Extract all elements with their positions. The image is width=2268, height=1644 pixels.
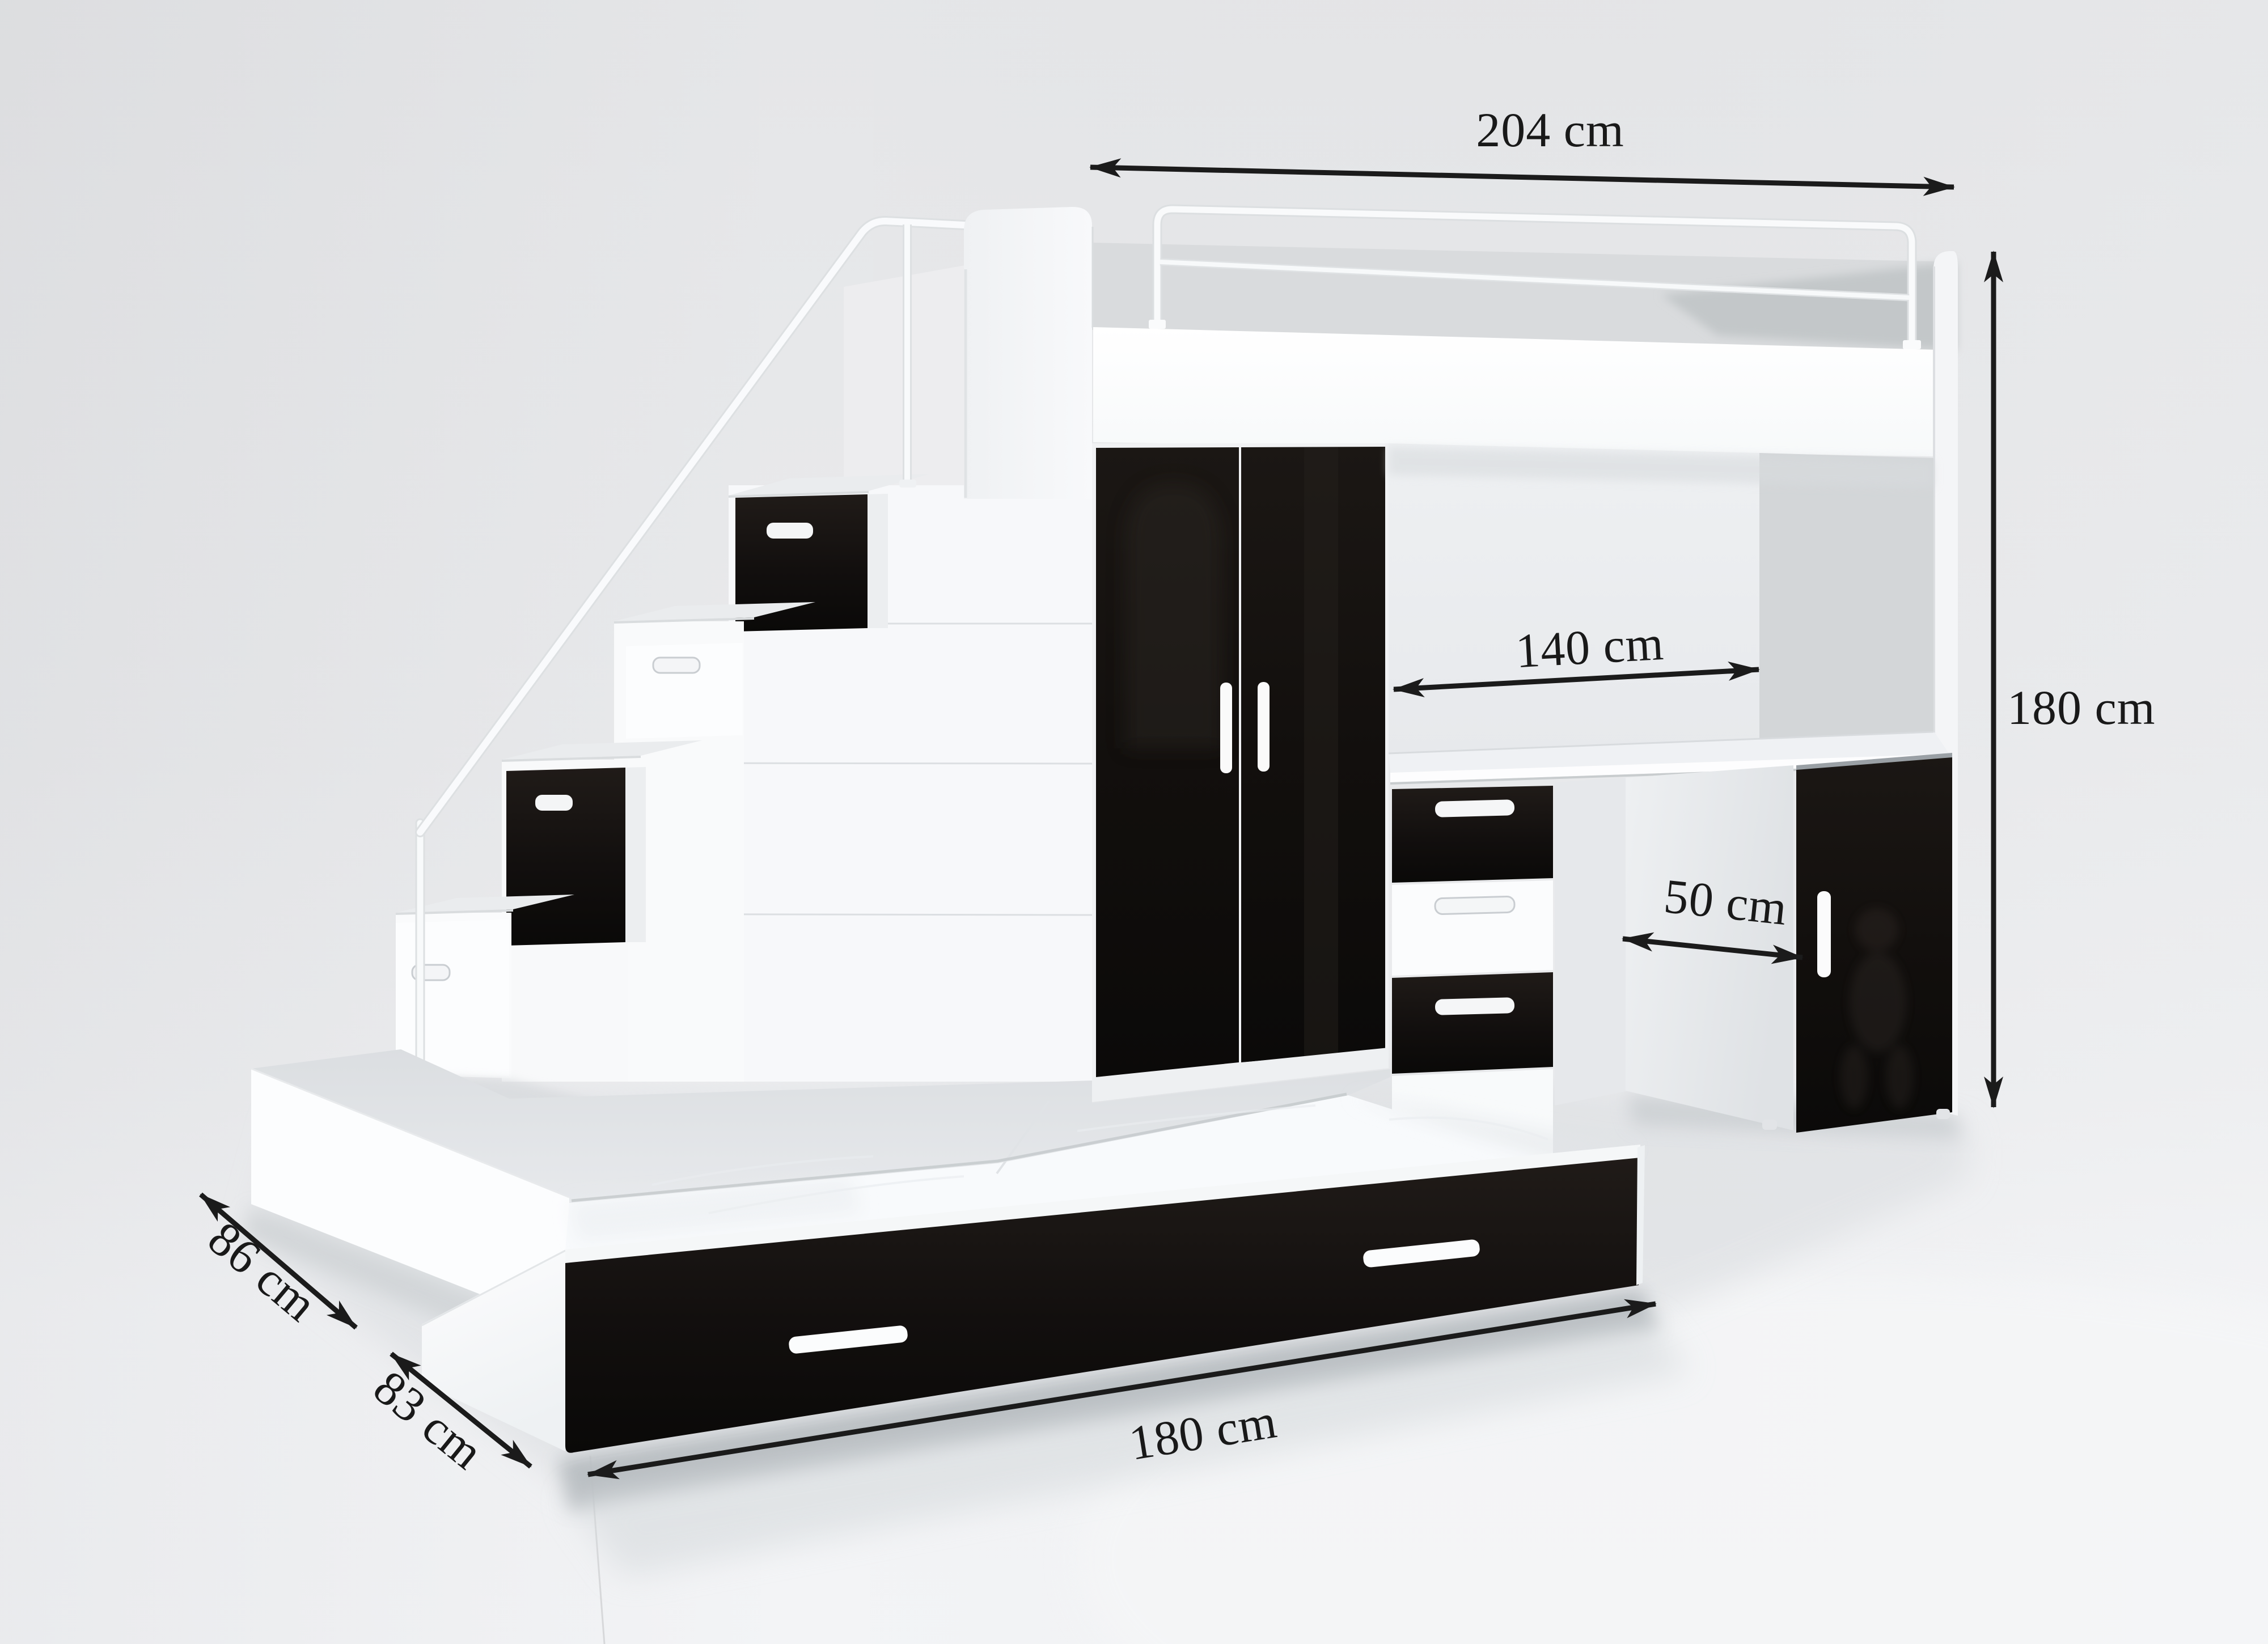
svg-text:180 cm: 180 cm [2007,680,2156,735]
svg-text:140 cm: 140 cm [1514,616,1665,678]
svg-text:204 cm: 204 cm [1476,103,1624,157]
